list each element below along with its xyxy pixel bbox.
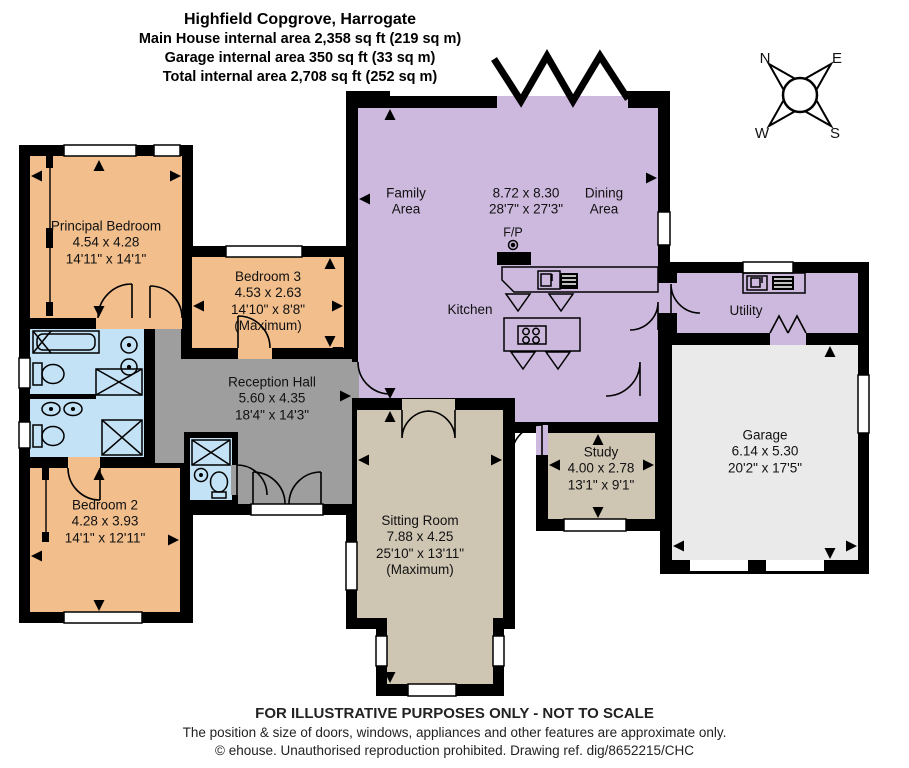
garage-area-text: Garage internal area 350 sq ft (33 sq m) bbox=[20, 49, 580, 68]
window bbox=[658, 212, 670, 245]
window bbox=[408, 684, 456, 696]
garage-label: Garage 6.14 x 5.30 20'2" x 17'5" bbox=[728, 427, 802, 476]
disclaimer-scale-text: FOR ILLUSTRATIVE PURPOSES ONLY - NOT TO … bbox=[0, 704, 909, 724]
floor-plan-drawing: N E W S bbox=[0, 0, 909, 768]
compass-north-label: N bbox=[760, 50, 771, 67]
compass-rose-icon: N E W S bbox=[755, 50, 842, 142]
window bbox=[64, 612, 142, 623]
shower-room-floor bbox=[190, 438, 232, 500]
bedroom-3-label: Bedroom 3 4.53 x 2.63 14'10" x 8'8" (Max… bbox=[231, 269, 305, 335]
open-plan-dimensions-label: 8.72 x 8.30 28'7" x 27'3" bbox=[489, 186, 563, 219]
window bbox=[376, 636, 387, 666]
kitchen-label: Kitchen bbox=[447, 302, 492, 318]
plan-header: Highfield Copgrove, Harrogate Main House… bbox=[20, 10, 580, 87]
window bbox=[19, 358, 30, 388]
compass-west-label: W bbox=[755, 125, 770, 142]
main-house-area-text: Main House internal area 2,358 sq ft (21… bbox=[20, 30, 580, 49]
window bbox=[858, 375, 869, 433]
window bbox=[64, 145, 136, 156]
bedroom-2-label: Bedroom 2 4.28 x 3.93 14'1" x 12'11" bbox=[65, 497, 146, 546]
window bbox=[493, 636, 504, 666]
plan-footer: FOR ILLUSTRATIVE PURPOSES ONLY - NOT TO … bbox=[0, 704, 909, 760]
page-title: Highfield Copgrove, Harrogate bbox=[20, 10, 580, 30]
sitting-room-label: Sitting Room 7.88 x 4.25 25'10" x 13'11"… bbox=[376, 513, 464, 579]
compass-south-label: S bbox=[830, 125, 840, 142]
window bbox=[154, 145, 180, 156]
utility-label: Utility bbox=[730, 303, 763, 319]
compass-east-label: E bbox=[832, 50, 842, 67]
window bbox=[743, 262, 793, 273]
copyright-text: © ehouse. Unauthorised reproduction proh… bbox=[0, 742, 909, 760]
disclaimer-approx-text: The position & size of doors, windows, a… bbox=[0, 724, 909, 742]
front-door-opening bbox=[251, 504, 323, 515]
study-label: Study 4.00 x 2.78 13'1" x 9'1" bbox=[568, 444, 635, 493]
dining-area-label: Dining Area bbox=[574, 186, 634, 219]
window bbox=[19, 422, 30, 448]
window bbox=[226, 246, 302, 257]
window bbox=[564, 519, 626, 531]
reception-hall-label: Reception Hall 5.60 x 4.35 18'4" x 14'3" bbox=[228, 374, 316, 423]
family-area-label: Family Area bbox=[376, 186, 436, 219]
total-area-text: Total internal area 2,708 sq ft (252 sq … bbox=[20, 68, 580, 87]
bathroom-divider-wall bbox=[30, 394, 96, 399]
floorplan-page: N E W S Highfield Copgrove, Harrogate Ma… bbox=[0, 0, 909, 768]
principal-bedroom-label: Principal Bedroom 4.54 x 4.28 14'11" x 1… bbox=[51, 218, 161, 267]
window bbox=[346, 542, 357, 590]
fireplace-label: F/P bbox=[503, 225, 522, 240]
